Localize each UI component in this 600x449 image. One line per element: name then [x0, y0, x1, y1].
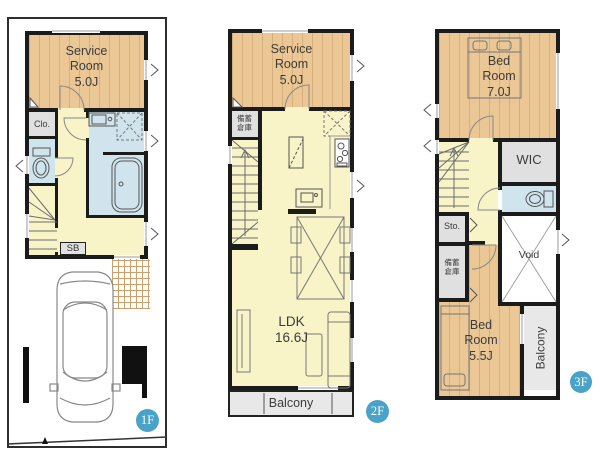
window [144, 131, 148, 151]
room-label-bed7-3f: Bed Room 7.0J [478, 54, 520, 100]
shoe-box: SB [60, 242, 86, 255]
room-label-closet-1f: Clo. [29, 119, 55, 130]
window [52, 29, 100, 33]
room-label-wic-3f: WIC [502, 152, 556, 168]
room-label-bed5-3f: Bed Room 5.5J [458, 318, 504, 364]
window [228, 146, 232, 164]
stock-label-line2: 倉庫 [233, 123, 256, 132]
window [350, 280, 354, 302]
room-label-sto-3f: Sto. [439, 221, 465, 232]
shoe-box-label: SB [67, 243, 80, 254]
room-size: 5.0J [49, 75, 124, 90]
room-label-stock-3f: 備蓄 倉庫 [440, 258, 464, 277]
window [25, 156, 29, 174]
window [556, 230, 560, 254]
gate-block-right [122, 346, 147, 384]
room-size: 5.5J [458, 349, 504, 364]
balcony-door [298, 386, 338, 390]
floor-plan-sheet: SB Service Room 5.0J Clo. 1F Balcony [0, 0, 600, 449]
window [144, 222, 148, 246]
window [144, 60, 148, 80]
window [350, 338, 354, 362]
floor-badge-3f: 3F [570, 371, 592, 393]
room-name: Bed Room [458, 318, 504, 349]
balcony-label-3f: Balcony [524, 306, 556, 390]
stock-label-line1: 備蓄 [233, 114, 256, 123]
entrance-porch [112, 259, 150, 309]
room-label-service-1f: Service Room 5.0J [49, 44, 124, 90]
entrance-door [25, 214, 29, 238]
floor-badge-1f: 1F [136, 409, 159, 432]
window [556, 53, 560, 109]
balcony-2f: Balcony [228, 390, 354, 417]
room-name: LDK [254, 314, 329, 330]
stock-label-line1: 備蓄 [440, 258, 464, 267]
room-size: 16.6J [254, 330, 329, 346]
window [350, 55, 354, 81]
window [350, 172, 354, 198]
room-label-service-2f: Service Room 5.0J [254, 42, 329, 88]
room-name: Service Room [254, 42, 329, 73]
gate-post-left [23, 347, 29, 403]
stock-label-line2: 倉庫 [440, 267, 464, 276]
balcony-label-2f: Balcony [269, 396, 313, 411]
room-label-void-3f: Void [502, 249, 556, 262]
room-size: 7.0J [478, 85, 520, 100]
door-to-porch [114, 255, 140, 259]
balcony-label-text: Balcony [533, 327, 547, 370]
gate-post-right [142, 384, 147, 398]
room-name: Bed Room [478, 54, 520, 85]
room-label-ldk-2f: LDK 16.6J [254, 314, 329, 347]
window [262, 29, 308, 33]
window [435, 104, 439, 118]
window [350, 228, 354, 252]
room-name: Service Room [49, 44, 124, 75]
room-size: 5.0J [254, 73, 329, 88]
room-label-stock-2f: 備蓄 倉庫 [233, 114, 256, 133]
window [435, 140, 439, 154]
floor-badge-2f: 2F [366, 400, 389, 423]
